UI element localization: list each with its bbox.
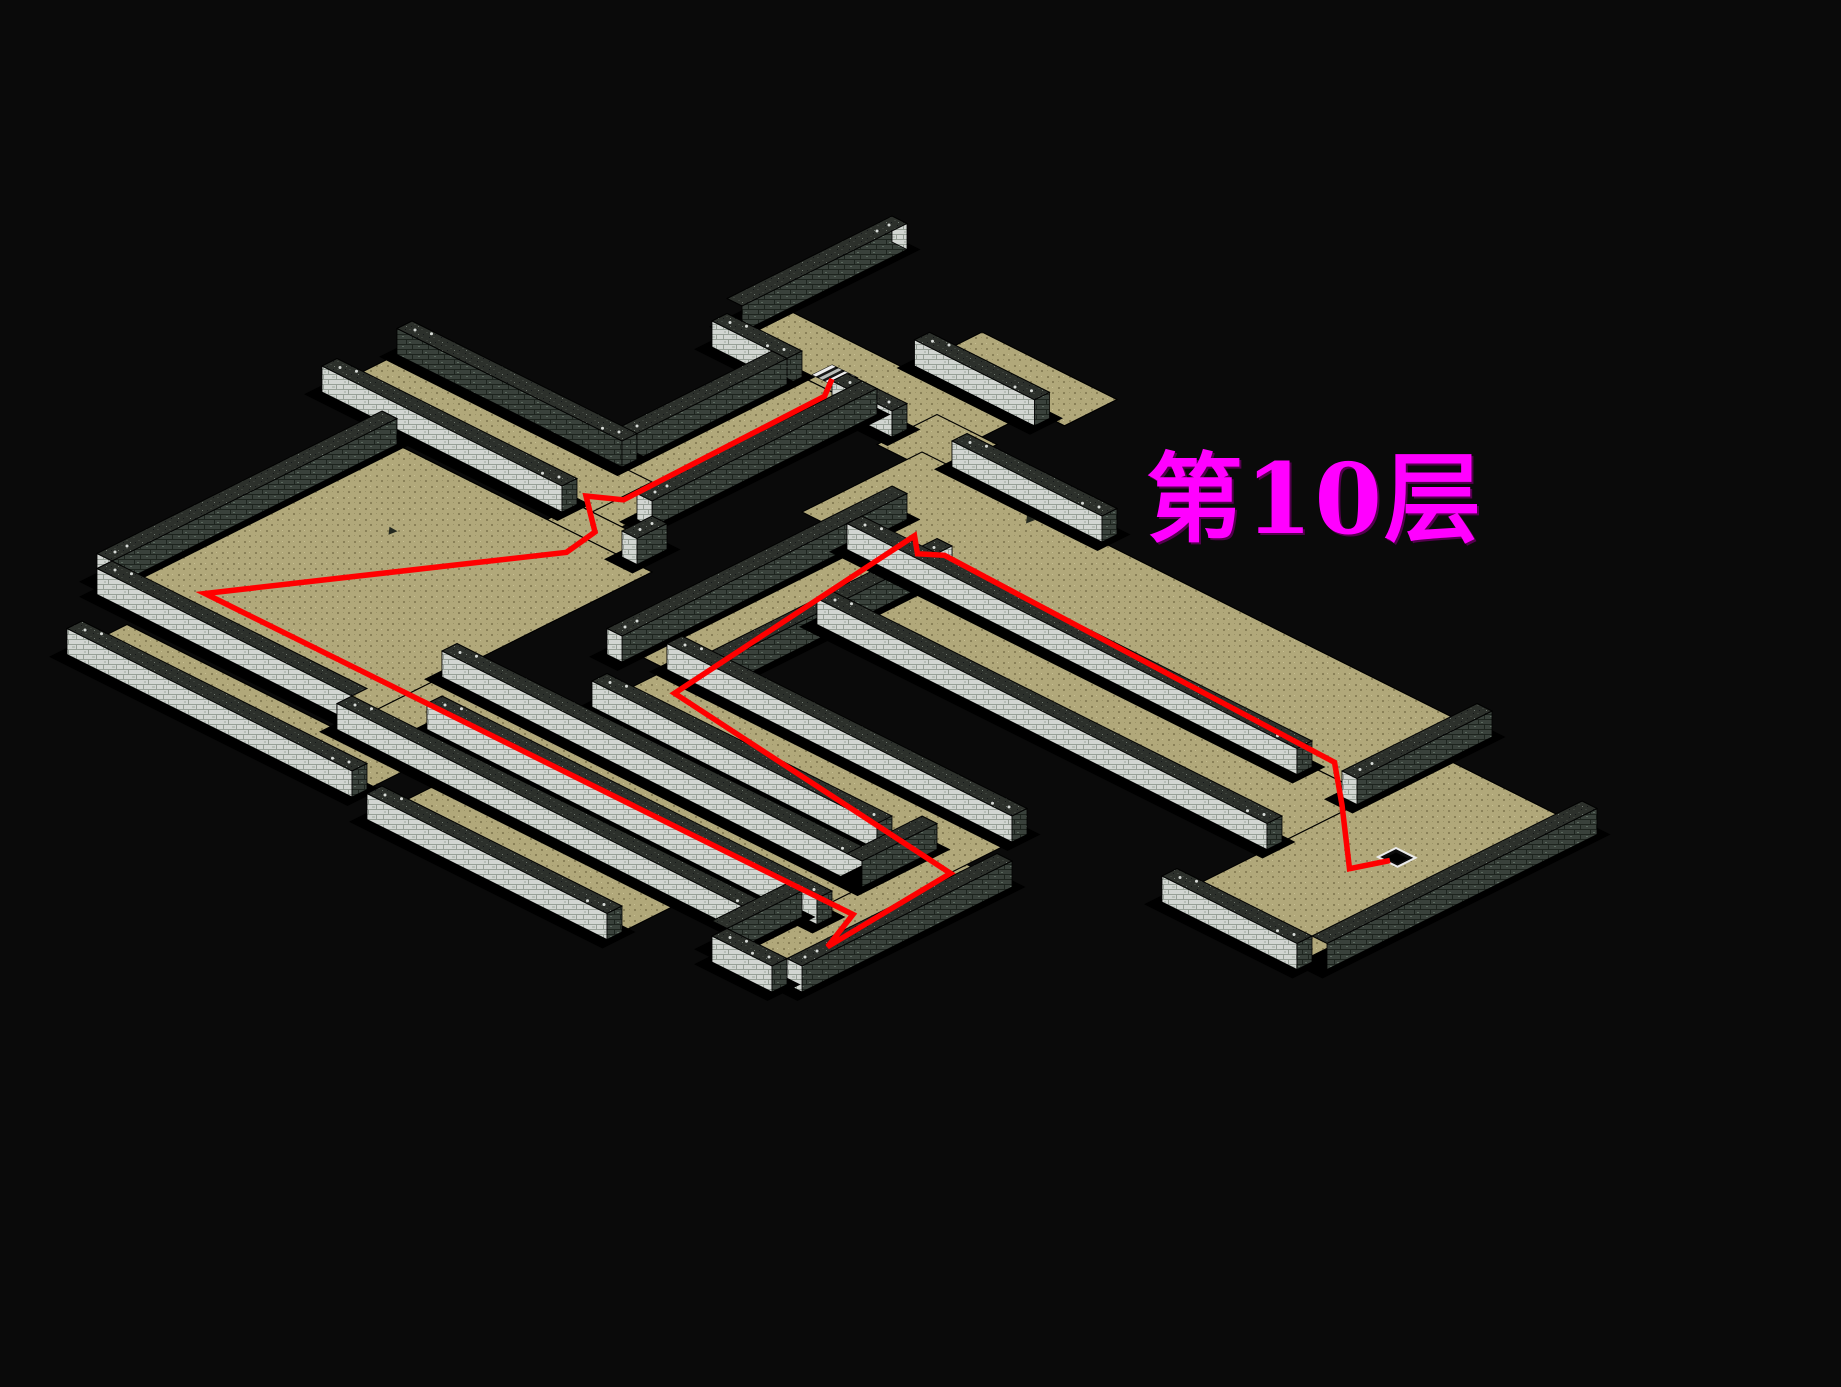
sparkle-dot — [1293, 933, 1296, 936]
sparkle-dot — [1030, 389, 1033, 392]
sparkle-dot — [1098, 506, 1101, 509]
sparkle-dot — [603, 903, 606, 906]
sparkle-dot — [639, 528, 642, 531]
sparkle-dot — [126, 545, 129, 548]
sparkle-dot — [880, 527, 883, 530]
sparkle-dot — [609, 681, 612, 684]
sparkle-dot — [745, 325, 748, 328]
sparkle-dot — [400, 797, 403, 800]
sparkle-dot — [888, 224, 891, 227]
sparkle-dot — [1179, 876, 1182, 879]
sparkle-dot — [459, 651, 462, 654]
sparkle-dot — [783, 348, 786, 351]
sparkle-dot — [1246, 809, 1249, 812]
sparkle-dot — [849, 381, 852, 384]
sparkle-dot — [625, 685, 628, 688]
sparkle-dot — [114, 551, 117, 554]
sparkle-dot — [841, 847, 844, 850]
sparkle-dot — [84, 629, 87, 632]
map-stage: 第10层 — [0, 0, 1841, 1387]
sparkle-dot — [804, 956, 807, 959]
sparkle-dot — [130, 572, 133, 575]
sparkle-dot — [931, 340, 934, 343]
sparkle-dot — [444, 704, 447, 707]
sparkle-dot — [768, 956, 771, 959]
sparkle-dot — [766, 344, 769, 347]
sparkle-dot — [985, 445, 988, 448]
sparkle-dot — [729, 936, 732, 939]
sparkle-dot — [751, 952, 754, 955]
sparkle-dot — [586, 899, 589, 902]
sparkle-dot — [864, 524, 867, 527]
sparkle-dot — [651, 522, 654, 525]
sparkle-dot — [969, 441, 972, 444]
sparkle-dot — [666, 485, 669, 488]
sparkle-dot — [745, 940, 748, 943]
level-title: 第10层 — [1146, 446, 1483, 553]
sparkle-dot — [654, 491, 657, 494]
sparkle-dot — [850, 602, 853, 605]
sparkle-dot — [700, 647, 703, 650]
sparkle-dot — [384, 794, 387, 797]
sparkle-dot — [636, 620, 639, 623]
sparkle-dot — [541, 472, 544, 475]
sparkle-dot — [736, 899, 739, 902]
sparkle-dot — [1195, 880, 1198, 883]
sparkle-dot — [1014, 386, 1017, 389]
sparkle-dot — [618, 431, 621, 434]
sparkle-dot — [1008, 806, 1011, 809]
sparkle-dot — [558, 476, 561, 479]
wall-face-se — [742, 224, 907, 333]
sparkle-dot — [876, 230, 879, 233]
sparkle-dot — [948, 344, 951, 347]
sparkle-dot — [370, 707, 373, 710]
sparkle-dot — [414, 329, 417, 332]
sparkle-dot — [348, 761, 351, 764]
sparkle-dot — [601, 427, 604, 430]
sparkle-dot — [1359, 768, 1362, 771]
sparkle-dot — [1263, 813, 1266, 816]
sparkle-dot — [460, 707, 463, 710]
sparkle-dot — [475, 655, 478, 658]
sparkle-dot — [100, 632, 103, 635]
level-map-svg — [0, 0, 1841, 1387]
sparkle-dot — [813, 888, 816, 891]
sparkle-dot — [331, 757, 334, 760]
sparkle-dot — [355, 370, 358, 373]
sparkle-dot — [873, 813, 876, 816]
sparkle-dot — [624, 626, 627, 629]
sparkle-dot — [834, 599, 837, 602]
sparkle-dot — [888, 401, 891, 404]
sparkle-dot — [339, 366, 342, 369]
sparkle-dot — [816, 950, 819, 953]
sparkle-dot — [684, 644, 687, 647]
sparkle-dot — [1081, 502, 1084, 505]
sparkle-dot — [354, 704, 357, 707]
sparkle-dot — [729, 321, 732, 324]
sparkle-dot — [430, 332, 433, 335]
sparkle-dot — [114, 569, 117, 572]
sparkle-dot — [1276, 929, 1279, 932]
sparkle-dot — [991, 802, 994, 805]
sparkle-dot — [933, 546, 936, 549]
sparkle-dot — [1371, 762, 1374, 765]
sparkle-dot — [636, 425, 639, 428]
